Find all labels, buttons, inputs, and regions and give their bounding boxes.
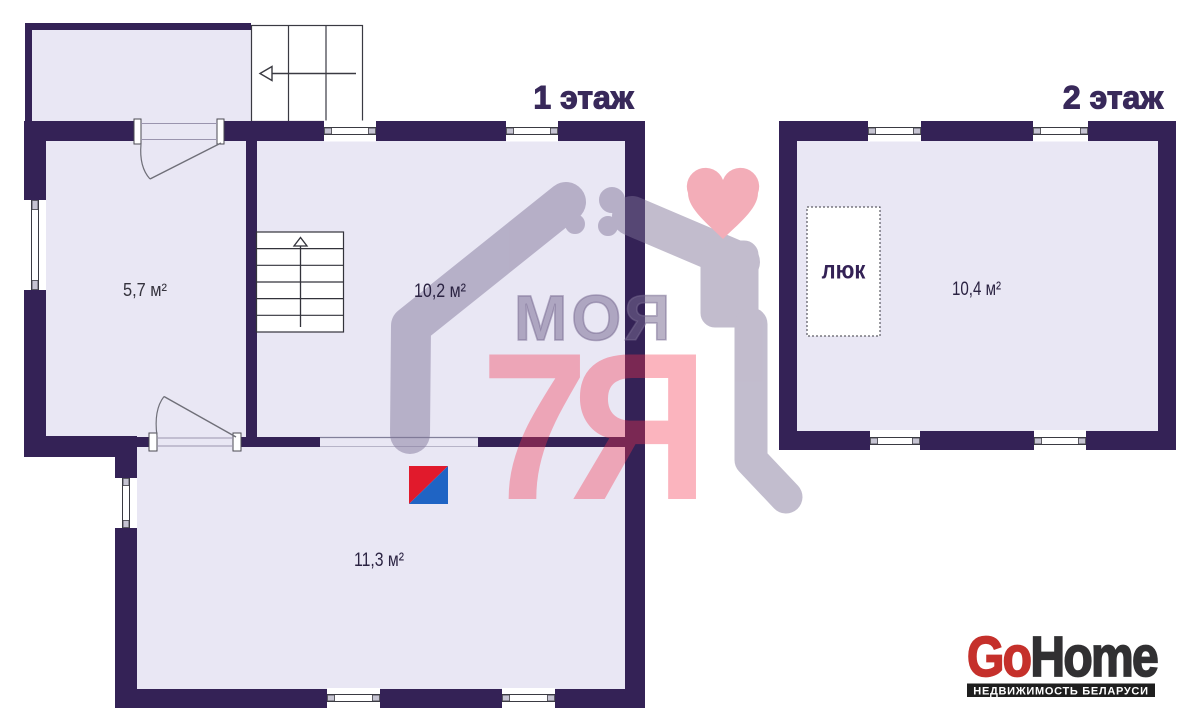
svg-text:10,2 м²: 10,2 м² [414,281,466,302]
svg-text:люк: люк [822,256,866,284]
svg-text:НЕДВИЖИМОСТЬ БЕЛАРУСИ: НЕДВИЖИМОСТЬ БЕЛАРУСИ [973,686,1148,698]
svg-text:10,4 м²: 10,4 м² [952,279,1001,300]
svg-text:2 этаж: 2 этаж [1063,80,1163,116]
svg-text:1 этаж: 1 этаж [533,80,633,116]
svg-text:GoHome: GoHome [967,625,1158,689]
svg-text:7Я: 7Я [481,309,696,544]
svg-text:11,3 м²: 11,3 м² [354,550,404,571]
svg-text:5,7 м²: 5,7 м² [123,280,167,300]
